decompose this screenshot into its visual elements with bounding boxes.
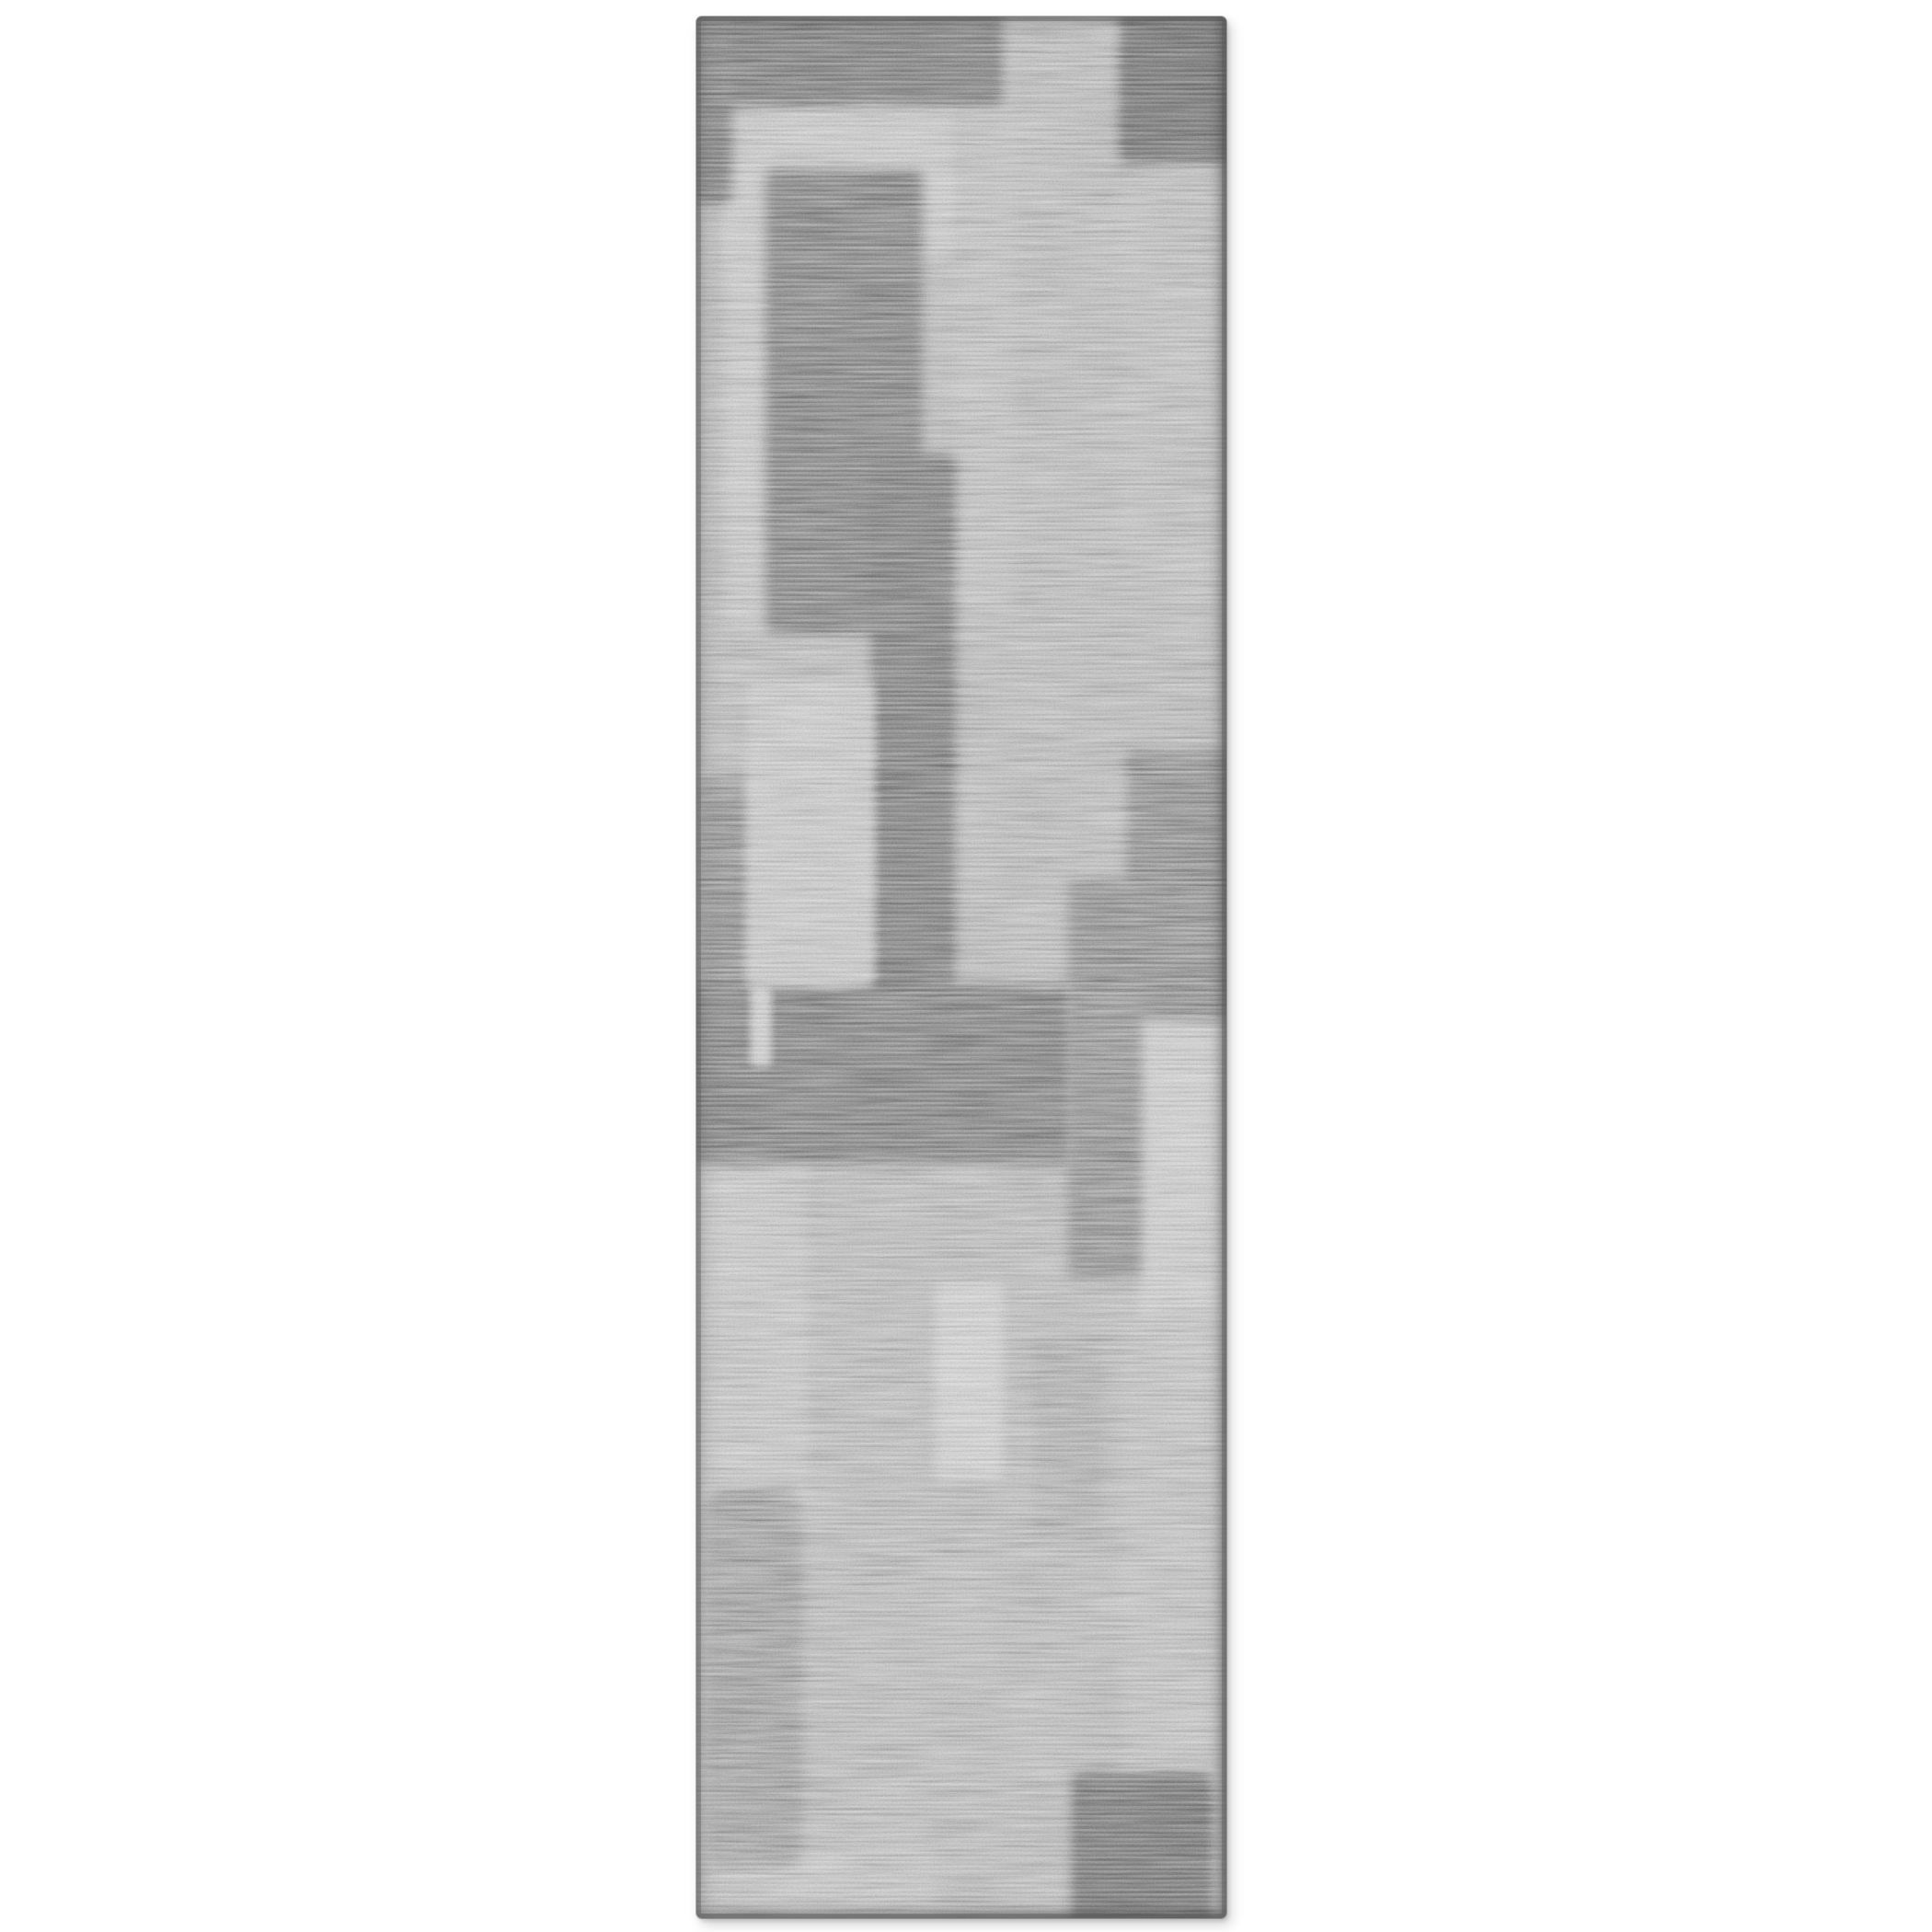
rug-patch-mid-dark-step [1067, 880, 1142, 1279]
rug-patch-bottom-left-dark [709, 1487, 802, 1867]
rug-patch-bottom-right-dark [1070, 1772, 1213, 1918]
rug-patch-bottom-right-light-col [1121, 1319, 1226, 1785]
rug-patch-top-left-step [696, 17, 733, 207]
rug-patch-bottom-bright-rect [935, 1282, 1004, 1481]
rug-patch-top-band-dark [696, 17, 1004, 108]
rug-patch-right-lower-light [1139, 1006, 1226, 1328]
rug-patch-light-inset-rect [747, 682, 874, 986]
rug-pattern [696, 17, 1226, 1918]
rug-patch-bottom-mid-medium [1033, 1339, 1102, 1538]
rug-patch-top-right-dark [1118, 17, 1226, 165]
rug-patch-center-light-strip [956, 45, 1014, 615]
rug-patch-right-upper-light [1121, 178, 1226, 578]
photo-background [0, 0, 1932, 1932]
rug-patch-small-light-bar [751, 986, 771, 1066]
rug-patch-bottom-left-light [696, 1123, 808, 1503]
rug [696, 17, 1226, 1918]
